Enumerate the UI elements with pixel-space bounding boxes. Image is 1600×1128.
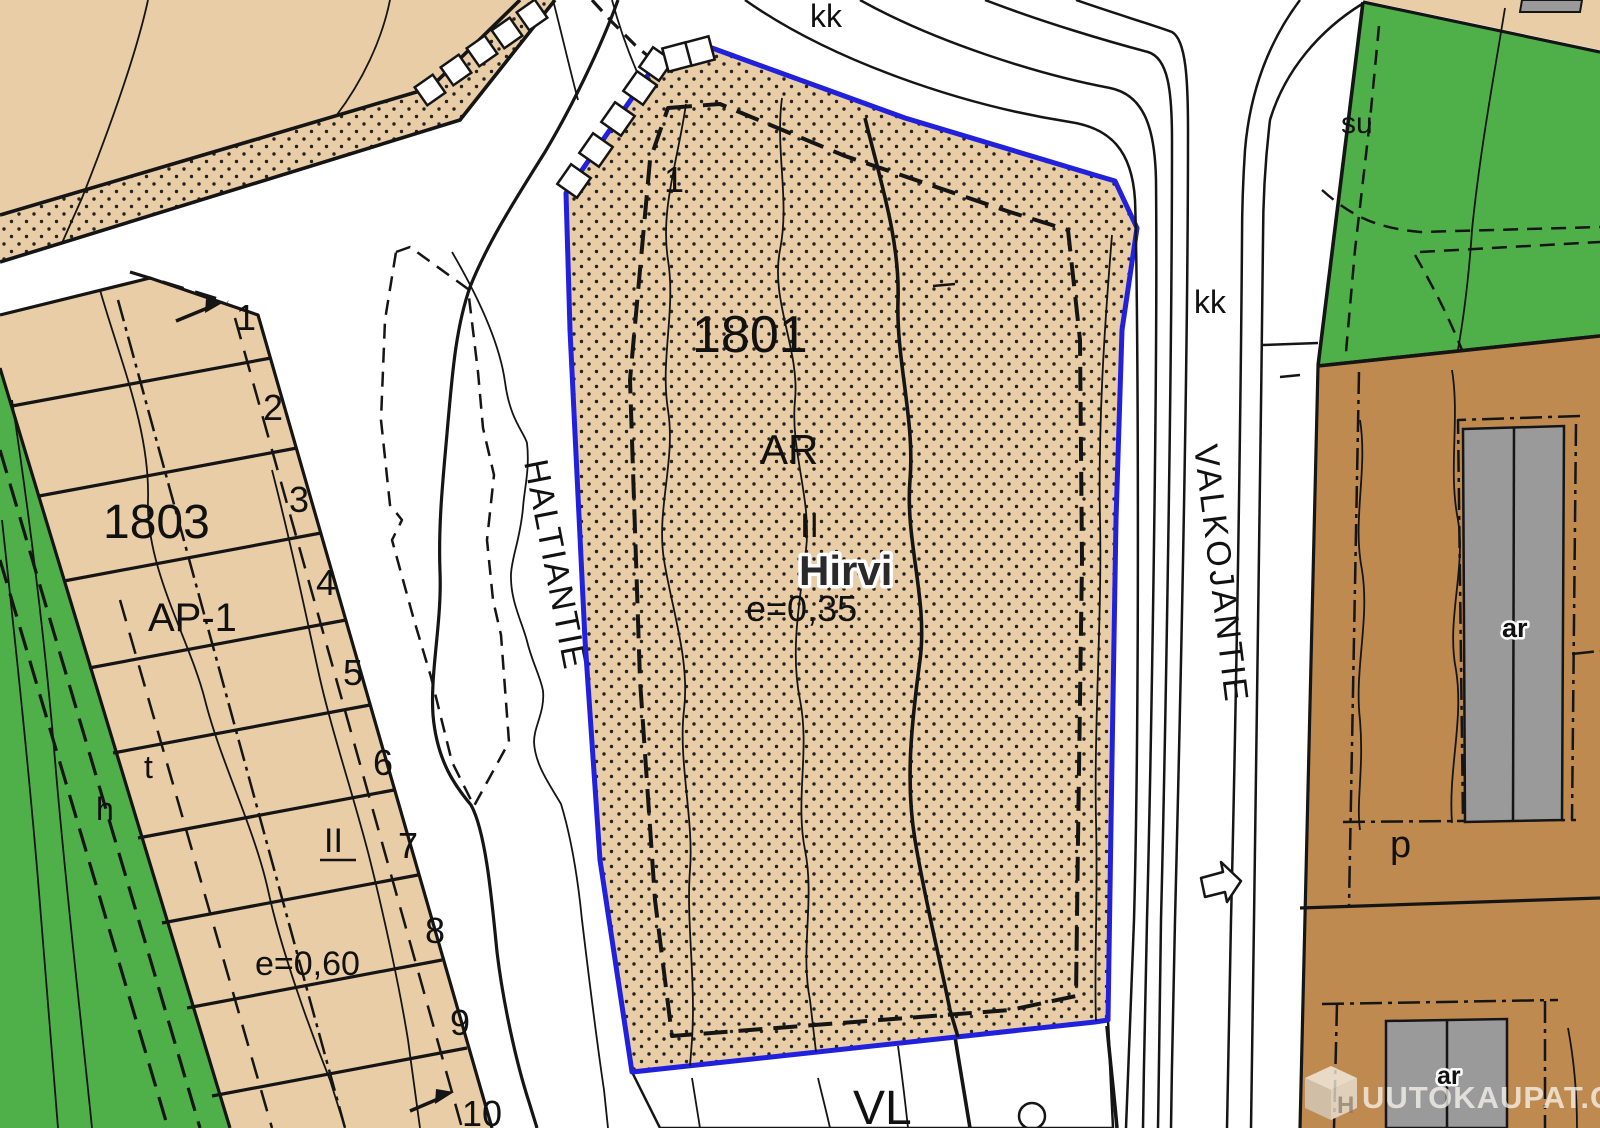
efficiency-035: e=0,35 — [746, 588, 857, 629]
area-label-p: p — [1390, 824, 1411, 866]
lot-number: 10 — [462, 1093, 502, 1128]
block-number-1801: 1801 — [692, 306, 808, 364]
lot-number: 8 — [425, 910, 445, 951]
letter-h: h — [96, 791, 114, 827]
road-label-kk-top: kk — [810, 0, 843, 34]
block-number-1803: 1803 — [103, 496, 210, 549]
lot-number-1801-1: 1 — [664, 159, 684, 200]
watermark-logo-letter: H — [1337, 1092, 1354, 1119]
lot-number: 3 — [289, 479, 309, 520]
map-canvas[interactable]: 1803 AP-1 e=0,60 II t h 1 2 3 4 5 6 7 8 … — [0, 0, 1600, 1128]
lot-number: 1 — [236, 297, 256, 338]
building-label-ar-north: ar — [1502, 613, 1528, 643]
area-label-su: su — [1341, 107, 1373, 140]
lot-number: 7 — [398, 825, 418, 866]
parcel-1801: 1 1801 AR II Hirvi e=0,35 — [566, 48, 1137, 1072]
lot-number: 6 — [373, 742, 393, 783]
lot-number: 9 — [450, 1002, 470, 1043]
land-use-ar: AR — [760, 426, 818, 473]
efficiency-060: e=0,60 — [255, 945, 360, 983]
land-use-ap1: AP-1 — [148, 596, 237, 640]
parcel-name-hirvi: Hirvi — [799, 547, 892, 594]
lot-number: 5 — [343, 652, 363, 693]
green-area-su — [1318, 2, 1600, 366]
parcel-east-brown: ar p ar — [1280, 336, 1600, 1128]
storeys-1803: II — [324, 822, 343, 860]
road-label-kk-right: kk — [1194, 284, 1227, 320]
letter-t: t — [144, 749, 153, 785]
lot-number: 2 — [263, 387, 283, 428]
watermark-text: UUTOKAUPAT.COM — [1362, 1080, 1600, 1115]
storeys-1801: II — [800, 507, 819, 545]
building-footprint — [1520, 0, 1582, 12]
area-northeast-green: su — [1318, 0, 1600, 392]
lot-number: 4 — [316, 562, 336, 603]
area-label-vl: VL — [853, 1082, 912, 1128]
zoning-map-screenshot: 1803 AP-1 e=0,60 II t h 1 2 3 4 5 6 7 8 … — [0, 0, 1600, 1128]
